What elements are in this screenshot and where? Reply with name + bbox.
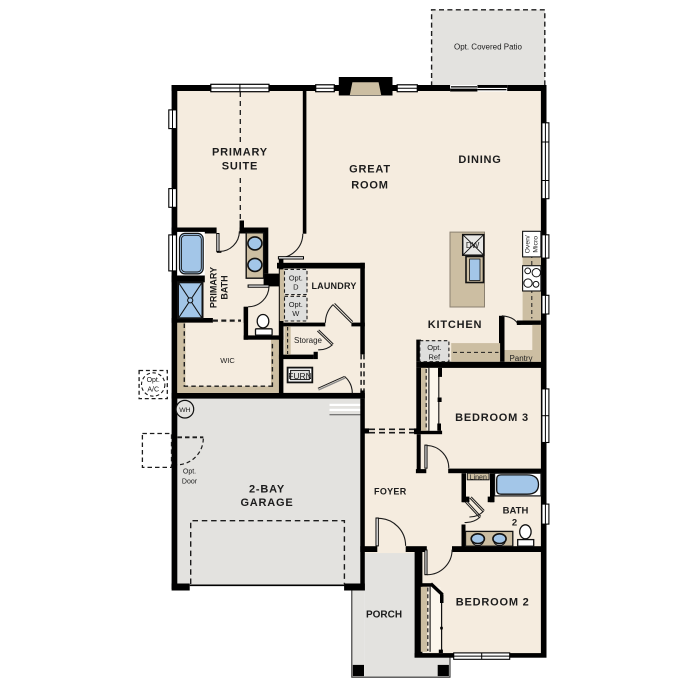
svg-text:BATH: BATH <box>220 275 230 299</box>
svg-text:PORCH: PORCH <box>366 609 402 620</box>
svg-text:Oven/: Oven/ <box>525 235 532 253</box>
svg-text:Opt.: Opt. <box>147 377 160 384</box>
svg-text:Opt.: Opt. <box>289 274 303 283</box>
svg-text:WH: WH <box>179 407 190 414</box>
svg-text:PRIMARY: PRIMARY <box>209 267 219 308</box>
svg-text:DW: DW <box>466 241 480 250</box>
svg-text:FOYER: FOYER <box>374 487 407 497</box>
svg-text:Door: Door <box>182 479 198 486</box>
svg-text:GREAT: GREAT <box>349 164 391 176</box>
svg-text:PRIMARY: PRIMARY <box>212 147 268 159</box>
svg-text:LAUNDRY: LAUNDRY <box>311 281 356 291</box>
svg-text:Storage: Storage <box>294 336 323 345</box>
svg-text:Opt.: Opt. <box>427 343 441 352</box>
svg-text:BATH: BATH <box>503 505 529 516</box>
svg-text:KITCHEN: KITCHEN <box>428 319 483 331</box>
svg-text:DINING: DINING <box>458 154 501 166</box>
svg-text:FURN: FURN <box>288 371 312 381</box>
svg-text:Opt.: Opt. <box>183 469 196 476</box>
svg-text:GARAGE: GARAGE <box>240 497 293 509</box>
svg-text:D: D <box>293 283 299 292</box>
svg-text:Micro: Micro <box>532 236 539 253</box>
svg-text:Opt. Covered Patio: Opt. Covered Patio <box>454 43 523 52</box>
svg-text:W: W <box>292 309 300 318</box>
svg-text:BEDROOM 3: BEDROOM 3 <box>455 412 529 424</box>
svg-text:2: 2 <box>512 517 517 528</box>
svg-text:Opt.: Opt. <box>289 300 303 309</box>
svg-text:Linen: Linen <box>470 474 487 481</box>
svg-text:ROOM: ROOM <box>351 180 388 192</box>
svg-text:2-BAY: 2-BAY <box>249 483 285 495</box>
svg-text:A/C: A/C <box>147 387 159 394</box>
svg-text:BEDROOM 2: BEDROOM 2 <box>456 597 530 609</box>
svg-text:SUITE: SUITE <box>222 161 258 173</box>
svg-text:Pantry: Pantry <box>509 354 532 363</box>
svg-text:Ref: Ref <box>428 352 441 361</box>
svg-text:WIC: WIC <box>220 356 235 365</box>
